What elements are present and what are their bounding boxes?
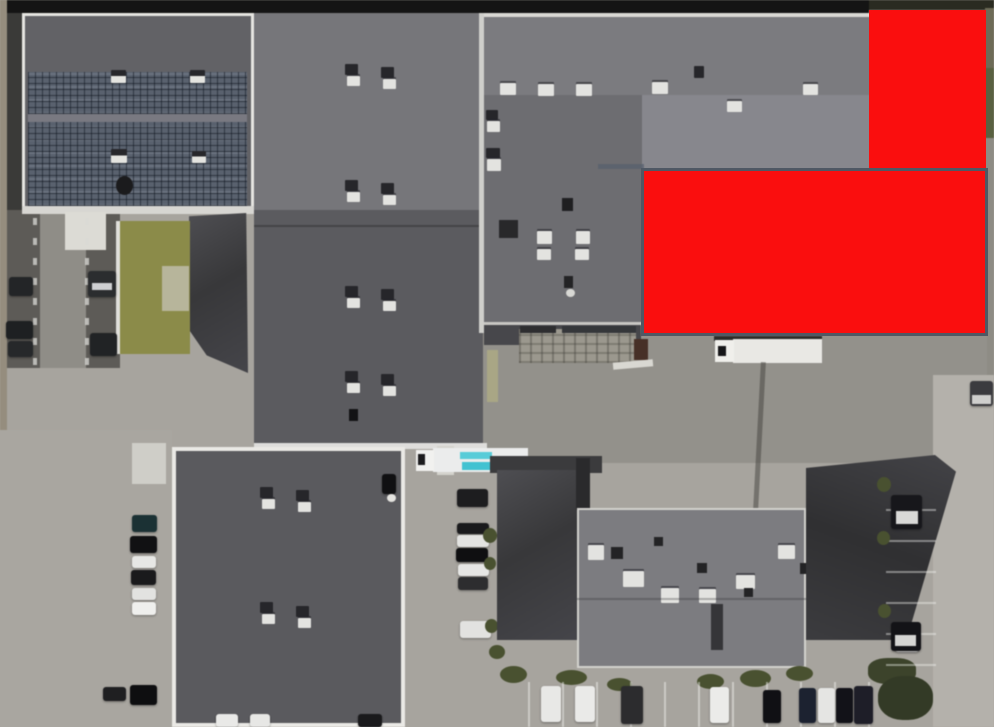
- highlight-region-south[interactable]: [641, 168, 988, 336]
- highlight-region-north[interactable]: [869, 10, 986, 170]
- annotation-overlay-layer: [0, 0, 994, 727]
- aerial-photo-view: [0, 0, 994, 727]
